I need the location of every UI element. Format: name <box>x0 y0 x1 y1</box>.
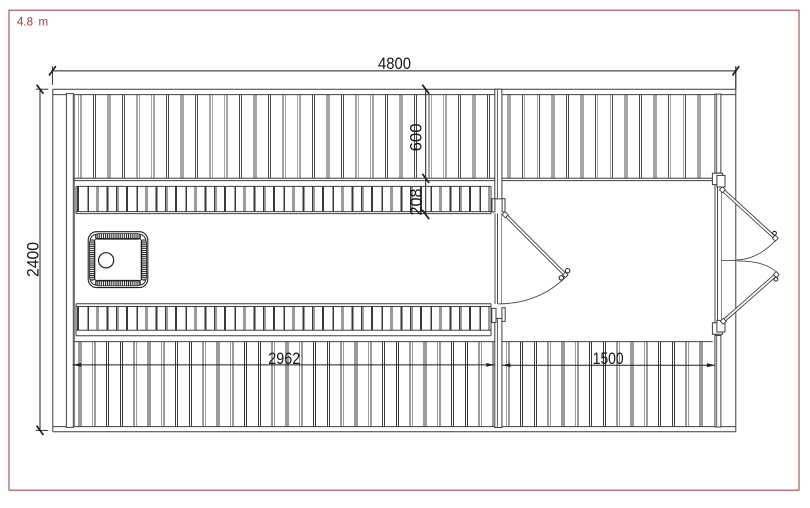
svg-text:4800: 4800 <box>378 54 411 73</box>
svg-text:2400: 2400 <box>23 242 42 277</box>
svg-text:1500: 1500 <box>593 349 624 368</box>
svg-text:2962: 2962 <box>268 349 300 368</box>
svg-text:208: 208 <box>406 189 425 216</box>
svg-text:4.8m: 4.8m <box>17 16 48 28</box>
svg-text:600: 600 <box>406 123 425 151</box>
